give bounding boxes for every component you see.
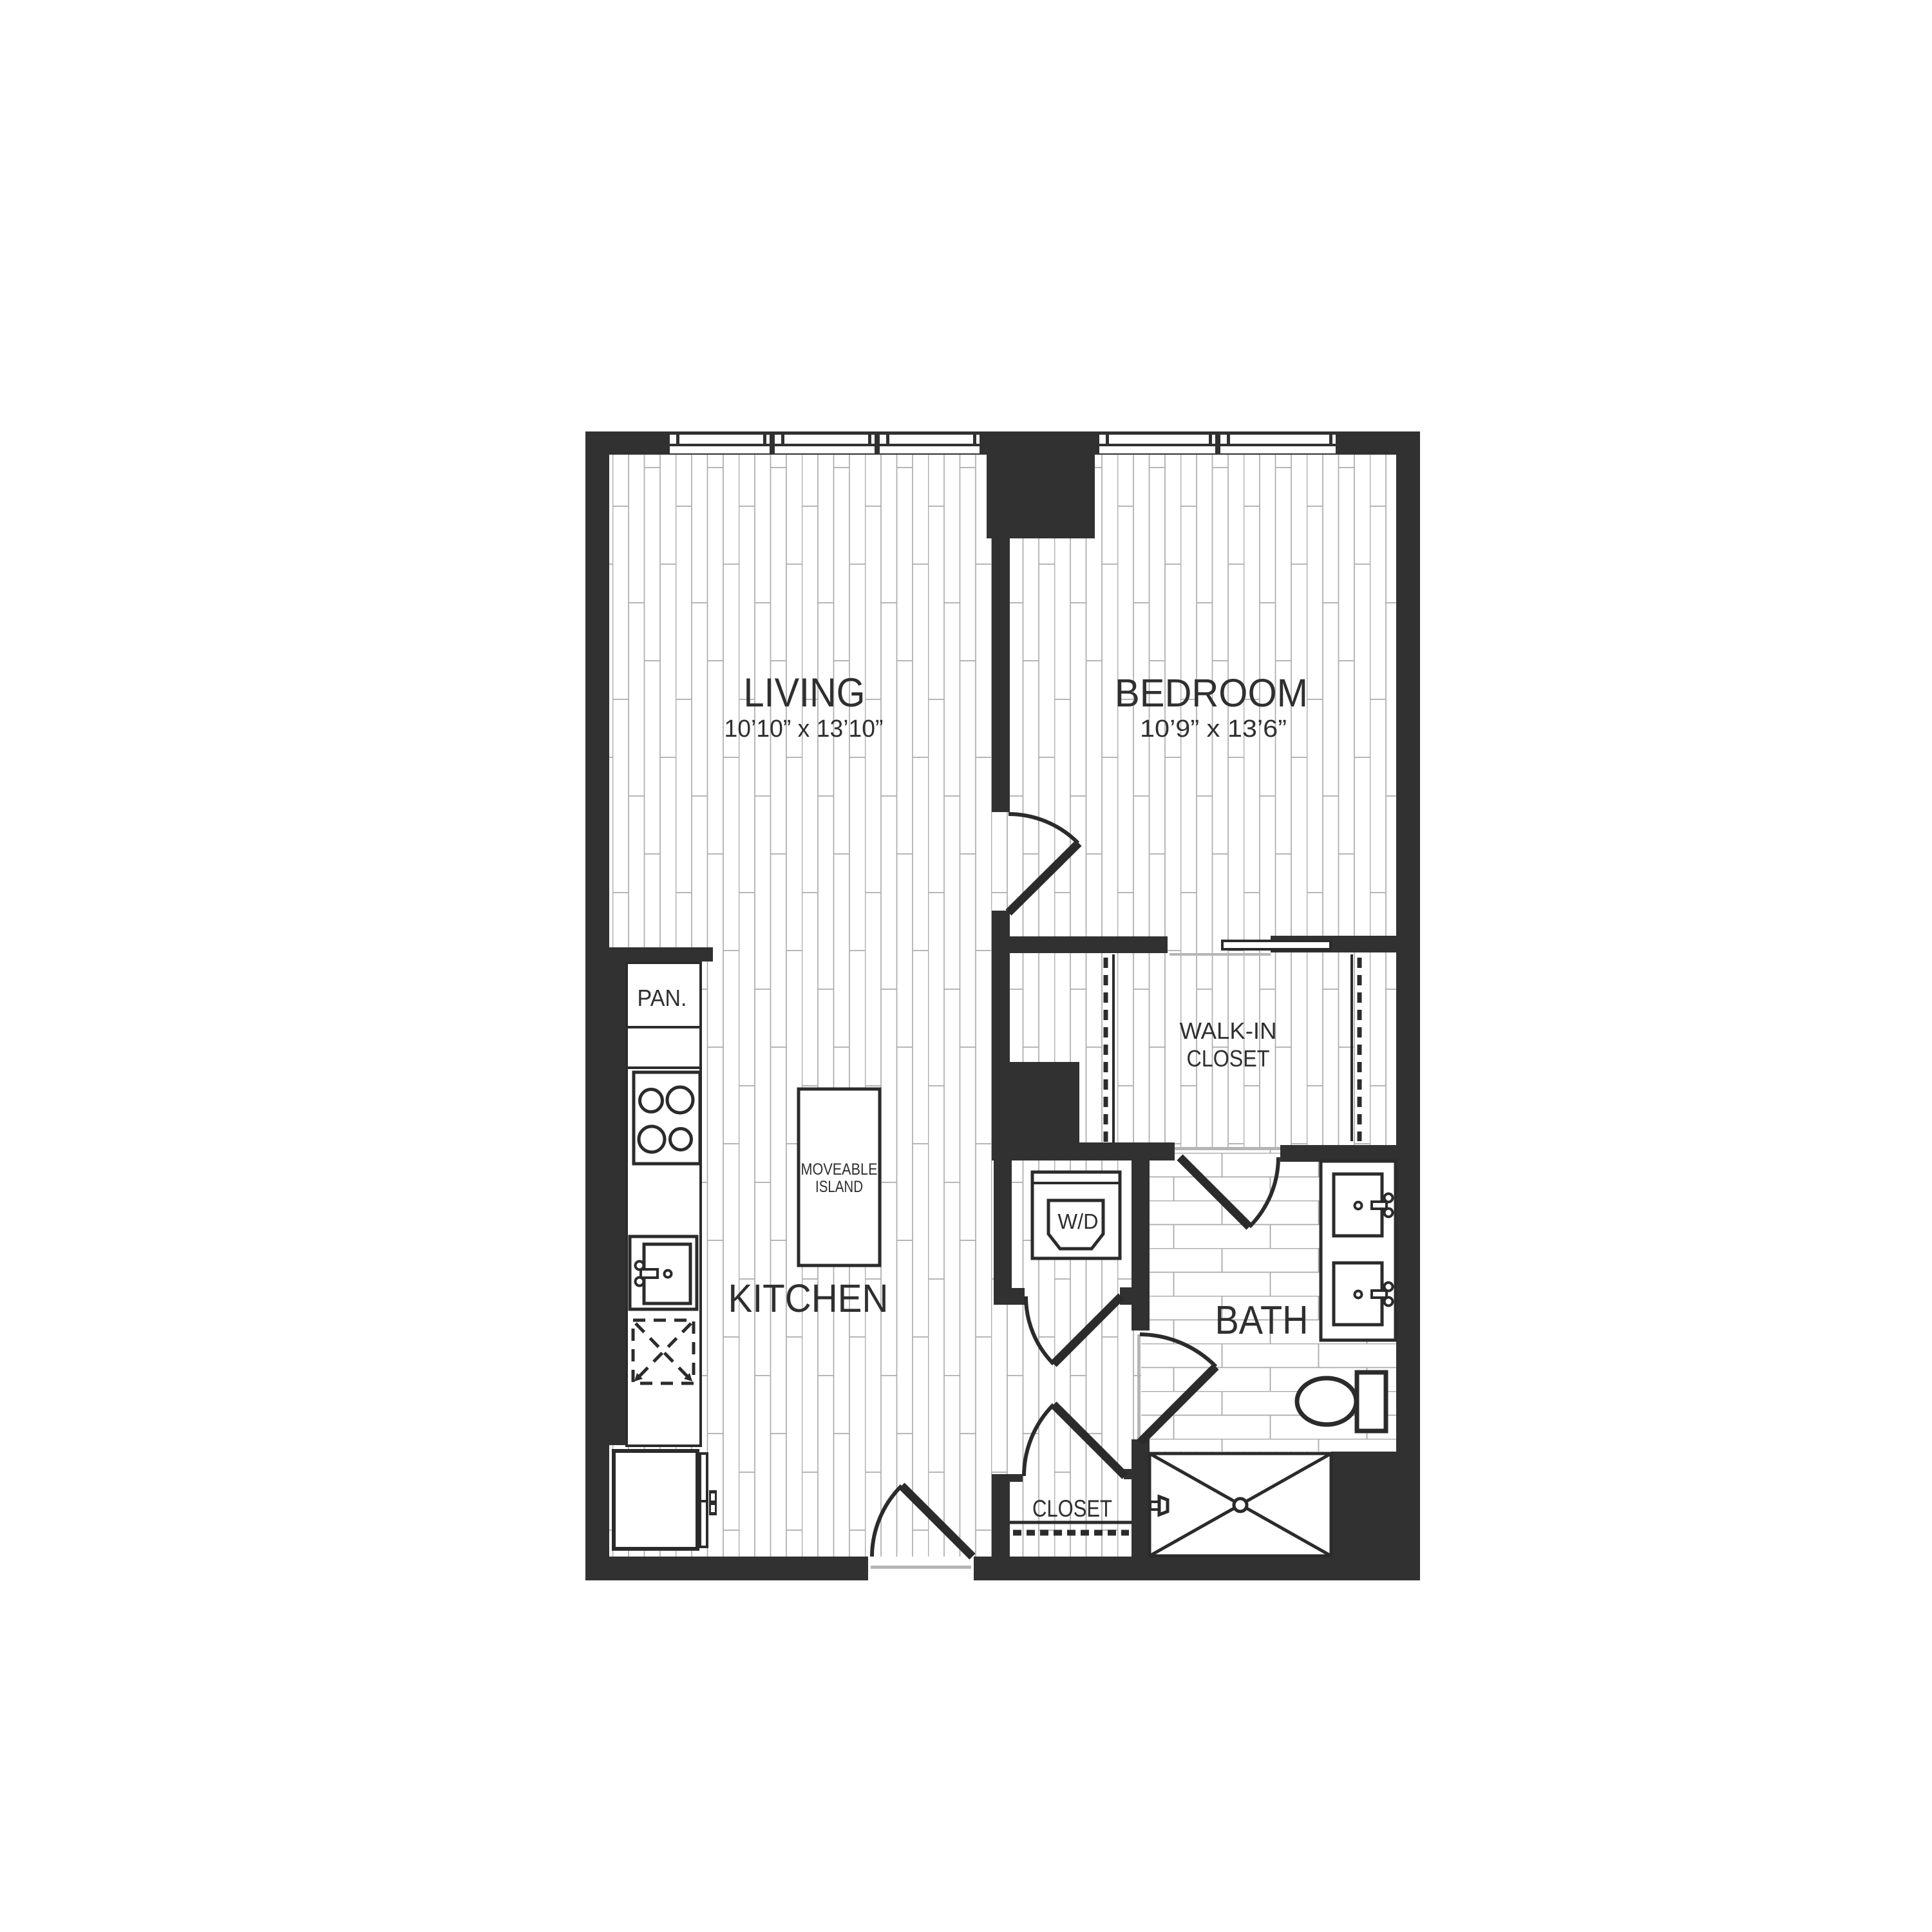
svg-text:ISLAND: ISLAND bbox=[815, 1178, 863, 1196]
svg-text:KITCHEN: KITCHEN bbox=[728, 1276, 889, 1320]
svg-text:CLOSET: CLOSET bbox=[1187, 1045, 1270, 1072]
svg-text:LIVING: LIVING bbox=[744, 670, 866, 715]
svg-text:PAN.: PAN. bbox=[638, 985, 687, 1011]
svg-text:BEDROOM: BEDROOM bbox=[1115, 671, 1308, 715]
svg-text:10’10” x 13’10”: 10’10” x 13’10” bbox=[724, 715, 884, 743]
svg-text:BATH: BATH bbox=[1215, 1298, 1309, 1343]
svg-text:WALK-IN: WALK-IN bbox=[1180, 1018, 1277, 1044]
svg-text:W/D: W/D bbox=[1058, 1209, 1099, 1233]
svg-text:CLOSET: CLOSET bbox=[1032, 1495, 1112, 1522]
svg-text:MOVEABLE: MOVEABLE bbox=[801, 1160, 878, 1179]
svg-text:10’9” x 13’6”: 10’9” x 13’6” bbox=[1140, 715, 1287, 743]
